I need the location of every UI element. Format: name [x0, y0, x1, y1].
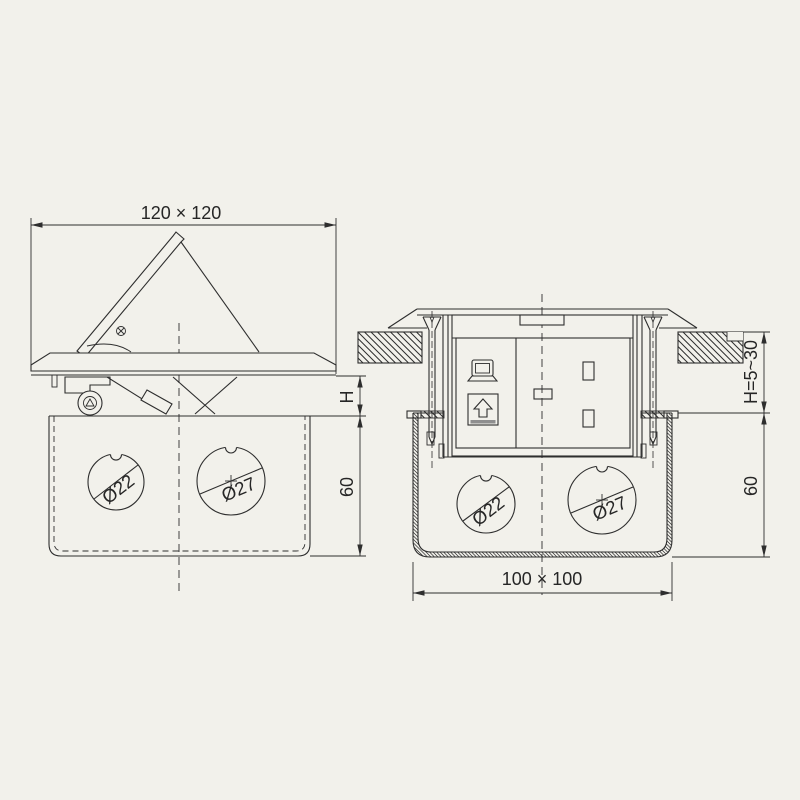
dim-100x100: 100 × 100	[413, 562, 672, 601]
hole-label-o22-right: Ø22	[468, 492, 508, 530]
laptop-icon	[468, 360, 497, 381]
mounting-box-left: Ø22 Ø27	[49, 416, 310, 556]
knockout-o27-left: Ø27	[197, 442, 265, 516]
latch-recess	[520, 315, 564, 325]
socket-slots	[534, 362, 594, 427]
dim-120x120: 120 × 120	[31, 203, 336, 374]
floor-notch	[727, 332, 743, 341]
dim-60-right: 60	[672, 413, 770, 557]
hinge-swing-arc	[87, 344, 131, 352]
screw-right	[641, 311, 665, 468]
screw-left	[420, 311, 444, 468]
dim-label-h: H	[337, 391, 357, 404]
left-view: 120 × 120	[31, 203, 366, 592]
hinge-bracket	[65, 377, 110, 393]
floor-hatch-right	[678, 332, 743, 363]
lid-screw-icon	[117, 327, 126, 336]
clamp-left	[420, 411, 444, 418]
eject-arrow-icon	[468, 394, 498, 425]
floor-hatch-left	[358, 332, 422, 363]
hole-label-o27-right: Ø27	[589, 492, 629, 525]
dim-60-left: 60	[310, 416, 366, 556]
knockout-o27-right: Ø27	[568, 461, 636, 535]
lever-arm	[141, 390, 172, 414]
dim-h-left: H	[310, 376, 366, 416]
lid-open	[77, 232, 259, 357]
technical-drawing-canvas: 120 × 120	[0, 0, 800, 800]
roller-outer	[78, 391, 102, 415]
lid-support-edge	[181, 242, 259, 352]
right-view: Ø22 Ø27 H=5~30 60	[358, 294, 770, 601]
dim-label-60-right: 60	[741, 476, 761, 496]
hole-label-o22-left: Ø22	[98, 470, 138, 508]
hole-label-o27-left: Ø27	[218, 473, 258, 506]
drawing-page: 120 × 120	[0, 0, 800, 800]
dim-label-120x120: 120 × 120	[141, 203, 222, 223]
lift-mechanism	[65, 377, 237, 415]
lid-panel	[77, 232, 184, 357]
dim-label-60-left: 60	[337, 477, 357, 497]
dim-label-100x100: 100 × 100	[502, 569, 583, 589]
knockout-o22-right: Ø22	[457, 470, 515, 534]
clamp-right	[641, 411, 665, 418]
dim-label-h-range: H=5~30	[741, 340, 761, 404]
knockout-o22-left: Ø22	[88, 449, 144, 511]
